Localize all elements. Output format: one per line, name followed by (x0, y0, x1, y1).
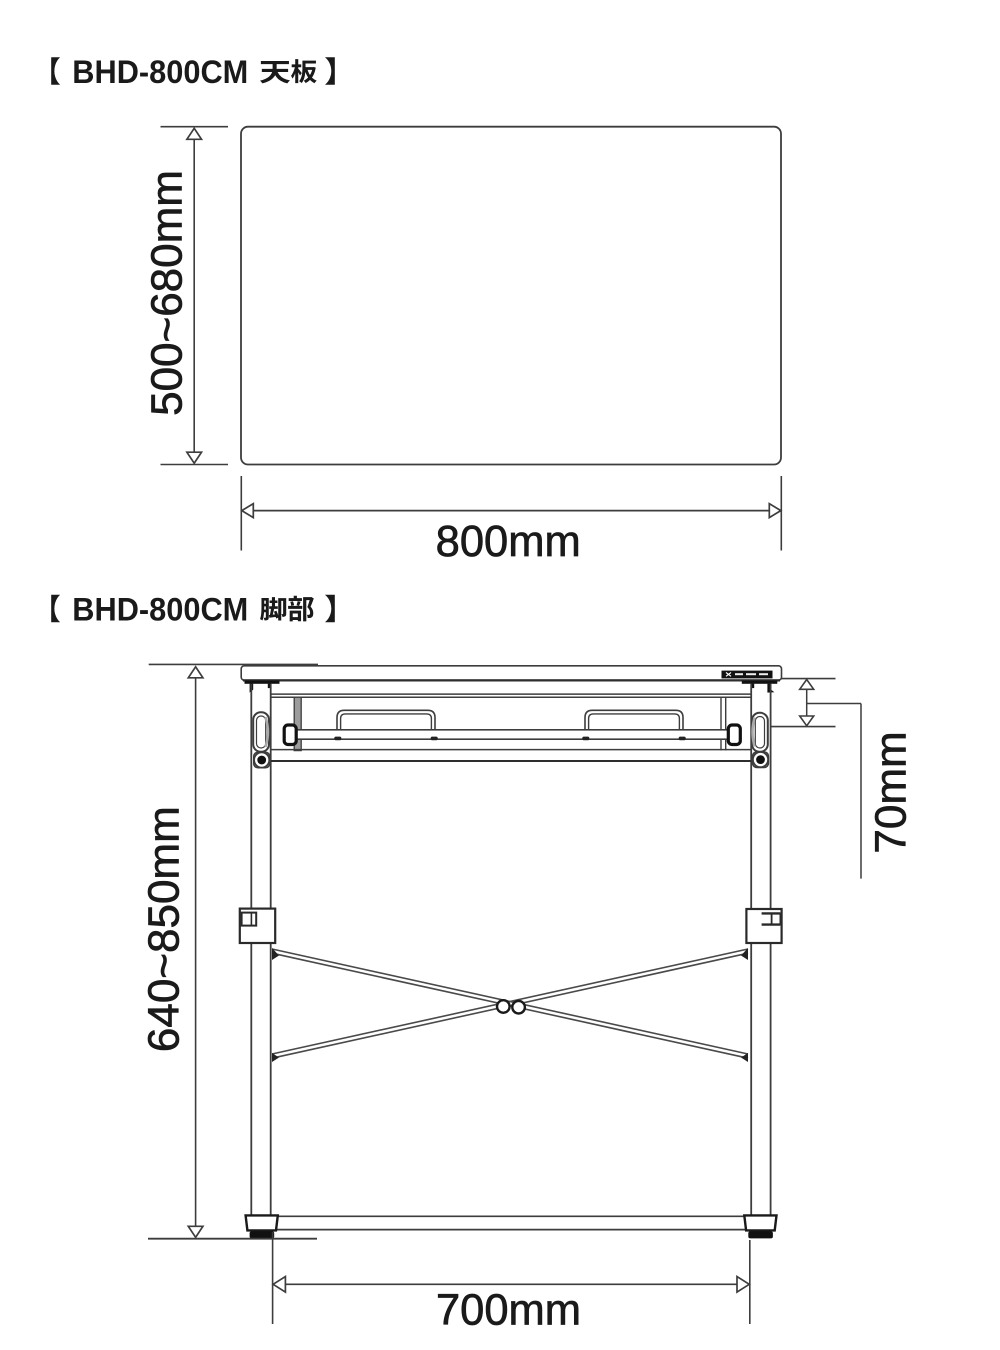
svg-text:BHD-800CM: BHD-800CM (72, 53, 248, 90)
svg-text:640~850mm: 640~850mm (139, 806, 188, 1052)
svg-text:700mm: 700mm (436, 1287, 581, 1335)
svg-text:BHD-800CM: BHD-800CM (72, 591, 248, 628)
svg-text:500~680mm: 500~680mm (142, 170, 191, 416)
svg-text:70mm: 70mm (867, 731, 916, 853)
svg-text:800mm: 800mm (436, 518, 581, 566)
